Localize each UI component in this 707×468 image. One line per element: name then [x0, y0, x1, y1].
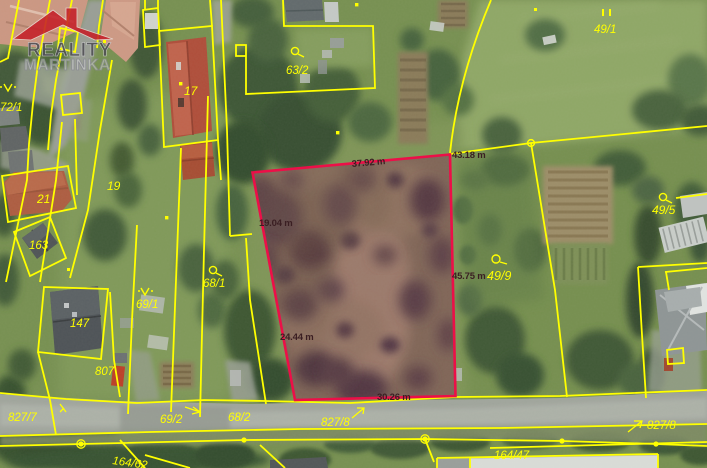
- svg-text:49/5: 49/5: [652, 203, 676, 217]
- svg-text:163: 163: [29, 240, 49, 252]
- svg-text:807: 807: [95, 366, 115, 378]
- svg-text:827/8: 827/8: [321, 417, 350, 429]
- svg-text:69/1: 69/1: [136, 299, 158, 311]
- svg-text:68/2: 68/2: [228, 412, 251, 424]
- svg-text:17: 17: [184, 84, 199, 98]
- svg-text:69/2: 69/2: [160, 414, 183, 426]
- svg-text:MARTINKA: MARTINKA: [24, 57, 111, 74]
- svg-text:24.44 m: 24.44 m: [280, 332, 313, 343]
- svg-text:19: 19: [107, 179, 121, 193]
- svg-text:21: 21: [36, 192, 50, 206]
- svg-text:63/2: 63/2: [286, 65, 309, 77]
- svg-text:164/47: 164/47: [494, 450, 530, 462]
- svg-text:45.75 m: 45.75 m: [452, 271, 485, 282]
- svg-text:147: 147: [70, 318, 90, 330]
- svg-text:68/1: 68/1: [203, 278, 225, 290]
- svg-text:30.26 m: 30.26 m: [377, 392, 410, 403]
- svg-text:49/9: 49/9: [487, 269, 511, 283]
- svg-text:43.18 m: 43.18 m: [452, 150, 485, 161]
- svg-text:827/8: 827/8: [647, 420, 676, 432]
- svg-text:19.04 m: 19.04 m: [259, 218, 292, 229]
- svg-text:827/7: 827/7: [8, 412, 37, 424]
- svg-text:49/1: 49/1: [594, 24, 616, 36]
- svg-text:72/1: 72/1: [0, 102, 22, 114]
